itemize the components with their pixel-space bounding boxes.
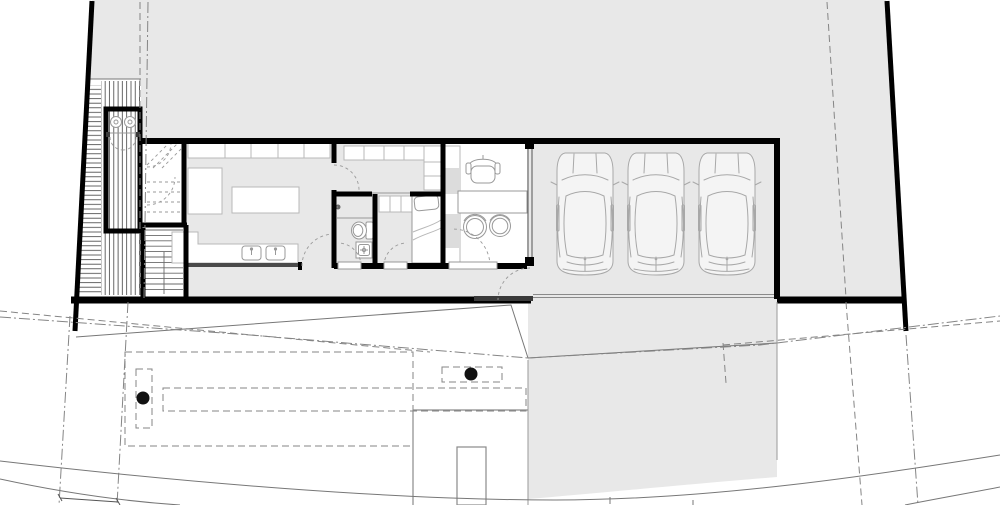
car-icon <box>622 153 690 275</box>
tree-icon <box>137 392 150 405</box>
bed-icon <box>412 193 441 263</box>
guest-chair-icon <box>490 215 511 237</box>
car-icon <box>693 153 761 275</box>
door-threshold <box>338 262 361 269</box>
road-edge-line <box>0 479 180 505</box>
floor-plan-page <box>0 0 1000 505</box>
door-threshold <box>384 262 407 269</box>
road-edges <box>0 455 1000 505</box>
easement-line <box>59 316 70 505</box>
desk <box>458 191 527 213</box>
entry-threshold <box>474 296 533 301</box>
easement-line <box>846 302 862 505</box>
washbasin-icon <box>356 242 372 258</box>
tree-icon <box>465 368 478 381</box>
planting-beds <box>125 352 526 446</box>
closet-row <box>379 196 412 212</box>
toilet-icon <box>352 222 374 239</box>
car-icon <box>551 153 619 275</box>
road-edge-line <box>905 487 1000 505</box>
planting-bed-outline <box>125 352 413 446</box>
easement-line <box>906 335 918 505</box>
tall-unit <box>188 168 222 214</box>
sliding-door-threshold <box>186 263 298 267</box>
planting-bed-outline <box>163 388 526 411</box>
setback-line <box>0 311 430 352</box>
kitchen-wall-cabinets <box>188 143 225 158</box>
road-edge-line <box>0 455 1000 500</box>
door-threshold <box>449 262 497 269</box>
floor-plan-canvas <box>0 0 1000 505</box>
kitchen-island <box>232 187 299 213</box>
entry-step <box>457 447 486 505</box>
driveway-strip <box>528 302 777 499</box>
